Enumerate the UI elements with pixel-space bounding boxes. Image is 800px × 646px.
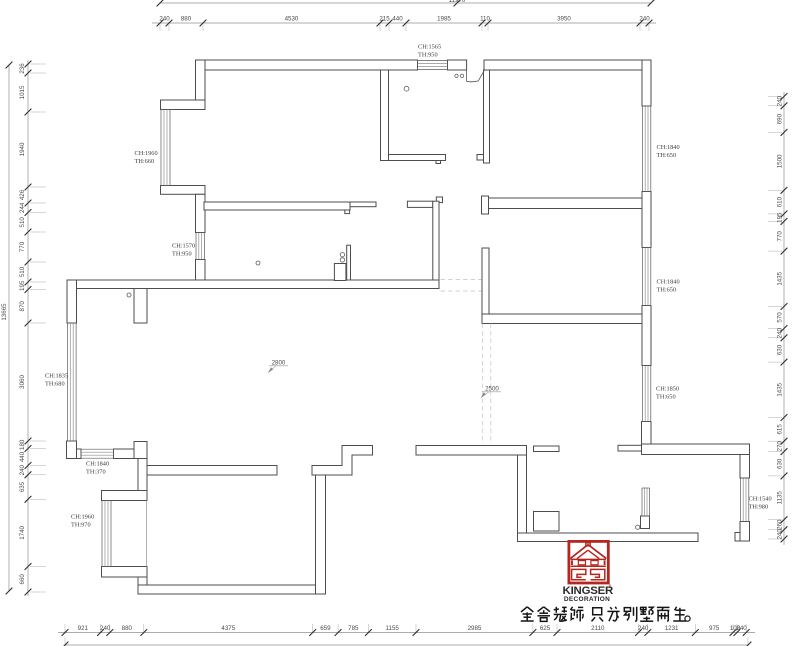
svg-text:CH:1840: CH:1840 [657, 279, 680, 286]
svg-text:240: 240 [100, 625, 111, 632]
svg-text:TH:650: TH:650 [657, 287, 677, 294]
svg-text:240: 240 [736, 625, 747, 632]
svg-text:880: 880 [181, 16, 192, 23]
svg-text:260: 260 [777, 519, 784, 530]
svg-text:': ' [609, 584, 611, 593]
svg-text:240: 240 [19, 464, 26, 475]
svg-text:1231: 1231 [665, 625, 679, 632]
svg-text:TH:950: TH:950 [418, 52, 438, 59]
svg-text:CH:1840: CH:1840 [86, 460, 109, 467]
svg-text:4375: 4375 [221, 625, 235, 632]
svg-text:195: 195 [777, 212, 784, 223]
svg-text:3060: 3060 [19, 375, 26, 389]
svg-text:240: 240 [638, 625, 649, 632]
svg-text:1435: 1435 [777, 271, 784, 285]
svg-text:440: 440 [392, 16, 403, 23]
svg-text:CH:1960: CH:1960 [135, 150, 158, 157]
svg-text:TH:970: TH:970 [71, 521, 91, 528]
svg-text:880: 880 [122, 625, 133, 632]
svg-text:440: 440 [19, 451, 26, 462]
svg-text:1015: 1015 [19, 85, 26, 99]
svg-text:244: 244 [19, 202, 26, 213]
svg-text:TH:660: TH:660 [135, 158, 155, 165]
svg-text:1740: 1740 [19, 525, 26, 539]
svg-text:570: 570 [777, 312, 784, 323]
svg-text:2500: 2500 [485, 386, 499, 393]
svg-text:CH:1570: CH:1570 [172, 243, 195, 250]
svg-text:630: 630 [777, 344, 784, 355]
svg-text:3950: 3950 [557, 16, 571, 23]
svg-text:CH:1960: CH:1960 [71, 513, 94, 520]
svg-text:TH:650: TH:650 [657, 152, 677, 159]
svg-text:240: 240 [639, 16, 650, 23]
svg-text:1435: 1435 [777, 382, 784, 396]
svg-text:660: 660 [19, 574, 26, 585]
svg-text:770: 770 [777, 231, 784, 242]
svg-text:240: 240 [777, 327, 784, 338]
svg-text:TH:370: TH:370 [86, 468, 106, 475]
svg-text:TH:950: TH:950 [172, 251, 192, 258]
svg-text:CH:1840: CH:1840 [657, 144, 680, 151]
svg-text:110: 110 [480, 16, 490, 23]
svg-text:CH:1565: CH:1565 [418, 44, 441, 51]
svg-text:TH:980: TH:980 [749, 504, 769, 511]
svg-text:240: 240 [159, 16, 170, 23]
svg-text:DECORATION: DECORATION [564, 596, 610, 603]
svg-text:180: 180 [19, 439, 26, 450]
svg-text:870: 870 [19, 301, 26, 312]
svg-text:510: 510 [19, 217, 26, 228]
svg-text:TH:650: TH:650 [656, 394, 676, 401]
svg-text:610: 610 [777, 196, 784, 207]
svg-text:785: 785 [348, 625, 359, 632]
svg-text:659: 659 [320, 625, 331, 632]
svg-text:426: 426 [19, 189, 26, 200]
svg-text:4530: 4530 [285, 16, 299, 23]
svg-text:CH:1850: CH:1850 [656, 386, 679, 393]
svg-text:2800: 2800 [272, 360, 286, 367]
svg-text:TH:680: TH:680 [45, 381, 65, 388]
svg-text:195: 195 [19, 280, 26, 291]
svg-text:625: 625 [540, 625, 551, 632]
svg-text:13665: 13665 [1, 303, 8, 321]
svg-text:510: 510 [19, 266, 26, 277]
svg-text:690: 690 [777, 113, 784, 124]
svg-text:2985: 2985 [468, 625, 482, 632]
svg-text:615: 615 [777, 424, 784, 435]
svg-text:11970: 11970 [449, 0, 466, 4]
svg-text:CH:1540: CH:1540 [749, 496, 772, 503]
svg-text:240: 240 [777, 529, 784, 540]
svg-text:2110: 2110 [591, 625, 605, 632]
svg-text:215: 215 [379, 16, 390, 23]
svg-text:236: 236 [19, 63, 26, 74]
svg-text:1155: 1155 [386, 625, 400, 632]
svg-text:975: 975 [709, 625, 720, 632]
svg-text:1135: 1135 [777, 491, 784, 505]
svg-text:270: 270 [777, 441, 784, 452]
svg-text:240: 240 [777, 95, 784, 106]
svg-text:CH:1835: CH:1835 [45, 373, 68, 380]
svg-text:921: 921 [78, 625, 89, 632]
svg-text:635: 635 [19, 481, 26, 492]
svg-text:1500: 1500 [777, 154, 784, 168]
svg-text:1940: 1940 [19, 142, 26, 156]
svg-text:630: 630 [777, 458, 784, 469]
svg-text:1985: 1985 [437, 16, 451, 23]
svg-text:770: 770 [19, 241, 26, 252]
